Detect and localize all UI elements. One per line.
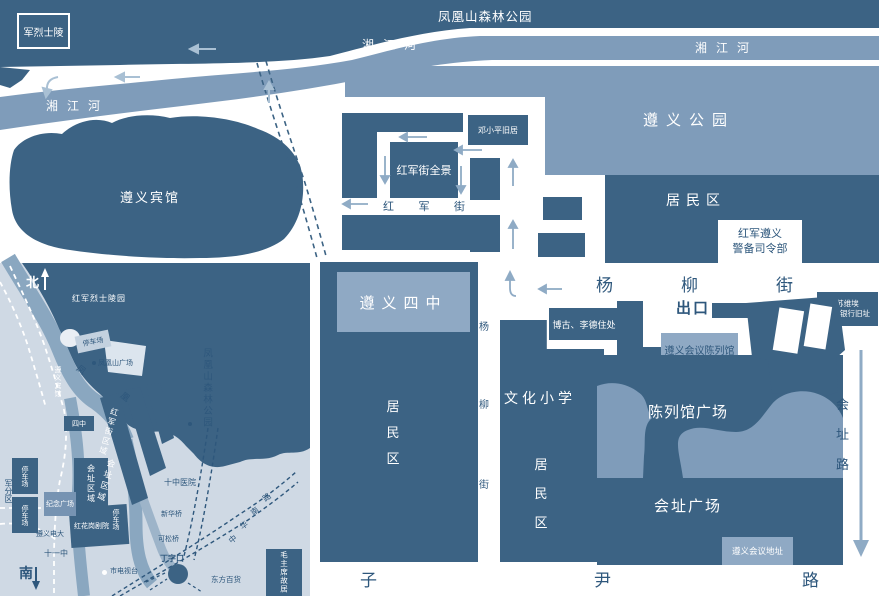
block (538, 233, 585, 257)
conference-site-label: 遵义会议地址 (732, 545, 783, 557)
block (342, 132, 377, 198)
ziyin-road-char: 尹 (594, 566, 611, 591)
yangliu-street-char: 杨 (596, 271, 613, 296)
soviet-bank-line1: 苏维埃 (825, 299, 870, 309)
panorama-label: 红军街全景 (397, 162, 452, 178)
dashed-road (266, 61, 326, 256)
conference-site-box: 遵义会议地址 (722, 537, 793, 565)
yangliu-street-char: 柳 (681, 271, 698, 296)
huizhi-road-char: 路 (836, 454, 849, 473)
label-text: 凤凰山广场 (98, 359, 133, 367)
inset-xinhua-bridge-label: 新华桥 (161, 509, 182, 519)
map-dot (188, 422, 192, 426)
inset-south-label: 南 (19, 563, 33, 583)
block (342, 215, 500, 250)
site-square-label: 会址广场 (654, 495, 722, 516)
inset-tv-dot (102, 570, 107, 575)
inset-map-background (0, 263, 310, 596)
zunyi-park-area (345, 66, 879, 97)
vertical-street-char: 柳 (479, 396, 489, 411)
ziyin-road-char: 路 (802, 566, 819, 591)
inset-zunyi-univ-label: 遵义电大 (36, 529, 64, 539)
inset-mao-residence-label: 毛主席故居 (279, 551, 290, 594)
martyrs-cemetery-box: 军烈士陵 (17, 13, 70, 49)
huizhi-road-char: 会 (836, 394, 849, 413)
street-char: 军 (419, 198, 430, 214)
forest-park-label: 凤凰山森林公园 (438, 6, 533, 25)
inset-kesong-bridge-label: 可松桥 (158, 534, 179, 544)
river-label: 湘江河 (46, 97, 109, 114)
site-square-block (597, 478, 843, 565)
inset-forest-park-label: 凤凰山森林公园 (183, 348, 213, 433)
soviet-bank-box: 苏维埃 国家银行旧址 (817, 292, 878, 326)
inset-junction-label: 丁字口 (160, 553, 184, 564)
char: 居 (534, 454, 547, 473)
zunyi-park-label: 遵义公园 (643, 109, 735, 130)
char: 居 (386, 396, 399, 415)
martyrs-cemetery-label: 军烈士陵 (24, 24, 64, 39)
inset-no11-label: 十一中 (44, 548, 68, 559)
redarmy-street-label: 红 军 街 (383, 198, 465, 214)
inset-hospital-label: 十中医院 (164, 477, 196, 488)
char: 区 (534, 512, 547, 531)
inset-no4-label: 四中 (72, 419, 86, 429)
residential-label: 居民区 (666, 190, 726, 210)
street-char: 街 (454, 198, 465, 214)
inset-martyrs-cemetery-label: 红军烈士陵园 (72, 293, 126, 304)
bogu-lide-label: 博古、李德住处 (552, 318, 615, 331)
yangliu-street-char: 街 (776, 271, 793, 296)
ziyin-road-char: 子 (360, 566, 377, 591)
redarmy-street-panorama-box: 红军街全景 (390, 142, 458, 198)
vertical-street-char: 街 (479, 476, 489, 491)
bogu-lide-box: 博古、李德住处 (549, 308, 619, 340)
char: 区 (386, 448, 399, 467)
block (342, 113, 463, 132)
inset-parking-label: 停车场 (20, 466, 30, 487)
inset-parking-label: 停车场 (20, 505, 30, 526)
river-label: 湘江河 (362, 36, 425, 53)
river-label: 湘江河 (695, 39, 758, 56)
inset-theater-label: 红花岗剧院 (74, 521, 109, 531)
block (543, 197, 582, 220)
river-bank-wedge (0, 67, 30, 88)
garrison-hq-box: 红军遵义 警备司令部 (718, 220, 802, 263)
inset-memorial-square-box: 纪念广场 (44, 492, 76, 516)
block (470, 158, 500, 200)
huizhi-road-char: 址 (836, 424, 849, 443)
inset-parking-box: 停车场 (12, 497, 38, 533)
deng-residence-label: 邓小平旧居 (478, 125, 518, 136)
inset-north-label: 北 (26, 272, 39, 291)
inset-parking-box: 停车场 (12, 458, 38, 494)
residential-vertical-label: 居 民 区 (532, 454, 550, 531)
exhibition-square-label: 陈列馆广场 (648, 401, 728, 422)
char: 民 (534, 483, 547, 502)
inset-military-label: 军分区 (3, 479, 14, 503)
inset-mao-residence-box: 毛主席故居 (266, 549, 302, 596)
residential-vertical-label: 居 民 区 (384, 396, 402, 467)
inset-parking-label: 停车场 (82, 334, 105, 348)
garrison-hq-line1: 红军遵义 (733, 227, 788, 242)
huizhi-road-arrowhead (853, 540, 869, 557)
garrison-hq-line2: 警备司令部 (733, 242, 788, 257)
street-arrow (510, 280, 516, 296)
inset-oriental-store-label: 东方百货 (211, 574, 241, 585)
soviet-bank-line2: 国家银行旧址 (825, 309, 870, 319)
culture-school-block (500, 320, 604, 562)
label-text: 凤凰山森林公园 (199, 348, 213, 429)
char: 民 (386, 422, 399, 441)
inset-parking-label: 停车场 (111, 509, 121, 530)
map-dot (92, 361, 96, 365)
exit-label: 出口 (676, 297, 710, 318)
flow-arrow (47, 77, 58, 90)
deng-residence-box: 邓小平旧居 (468, 115, 528, 145)
vertical-street-char: 杨 (479, 318, 489, 333)
inset-memorial-square-label: 纪念广场 (46, 500, 74, 508)
hotel-label: 遵义宾馆 (120, 187, 180, 206)
inset-hotel-label: 遵义宾馆 (53, 366, 63, 398)
no4-school-label: 遵义四中 (359, 292, 447, 313)
dashed-road (257, 63, 317, 258)
inset-fenghuang-square-label: 凤凰山广场 (92, 358, 133, 368)
zunyi-map: 军烈士陵 邓小平旧居 红军街全景 红军遵义 警备司令部 遵义四中 博古、李德住处… (0, 0, 879, 596)
street-char: 红 (383, 198, 394, 214)
inset-no4-box: 四中 (64, 416, 94, 431)
culture-school-label: 文化小学 (504, 388, 576, 408)
inset-tv-station-label: 市电视台 (110, 566, 138, 576)
block (712, 303, 796, 318)
no4-school-box: 遵义四中 (337, 272, 470, 332)
